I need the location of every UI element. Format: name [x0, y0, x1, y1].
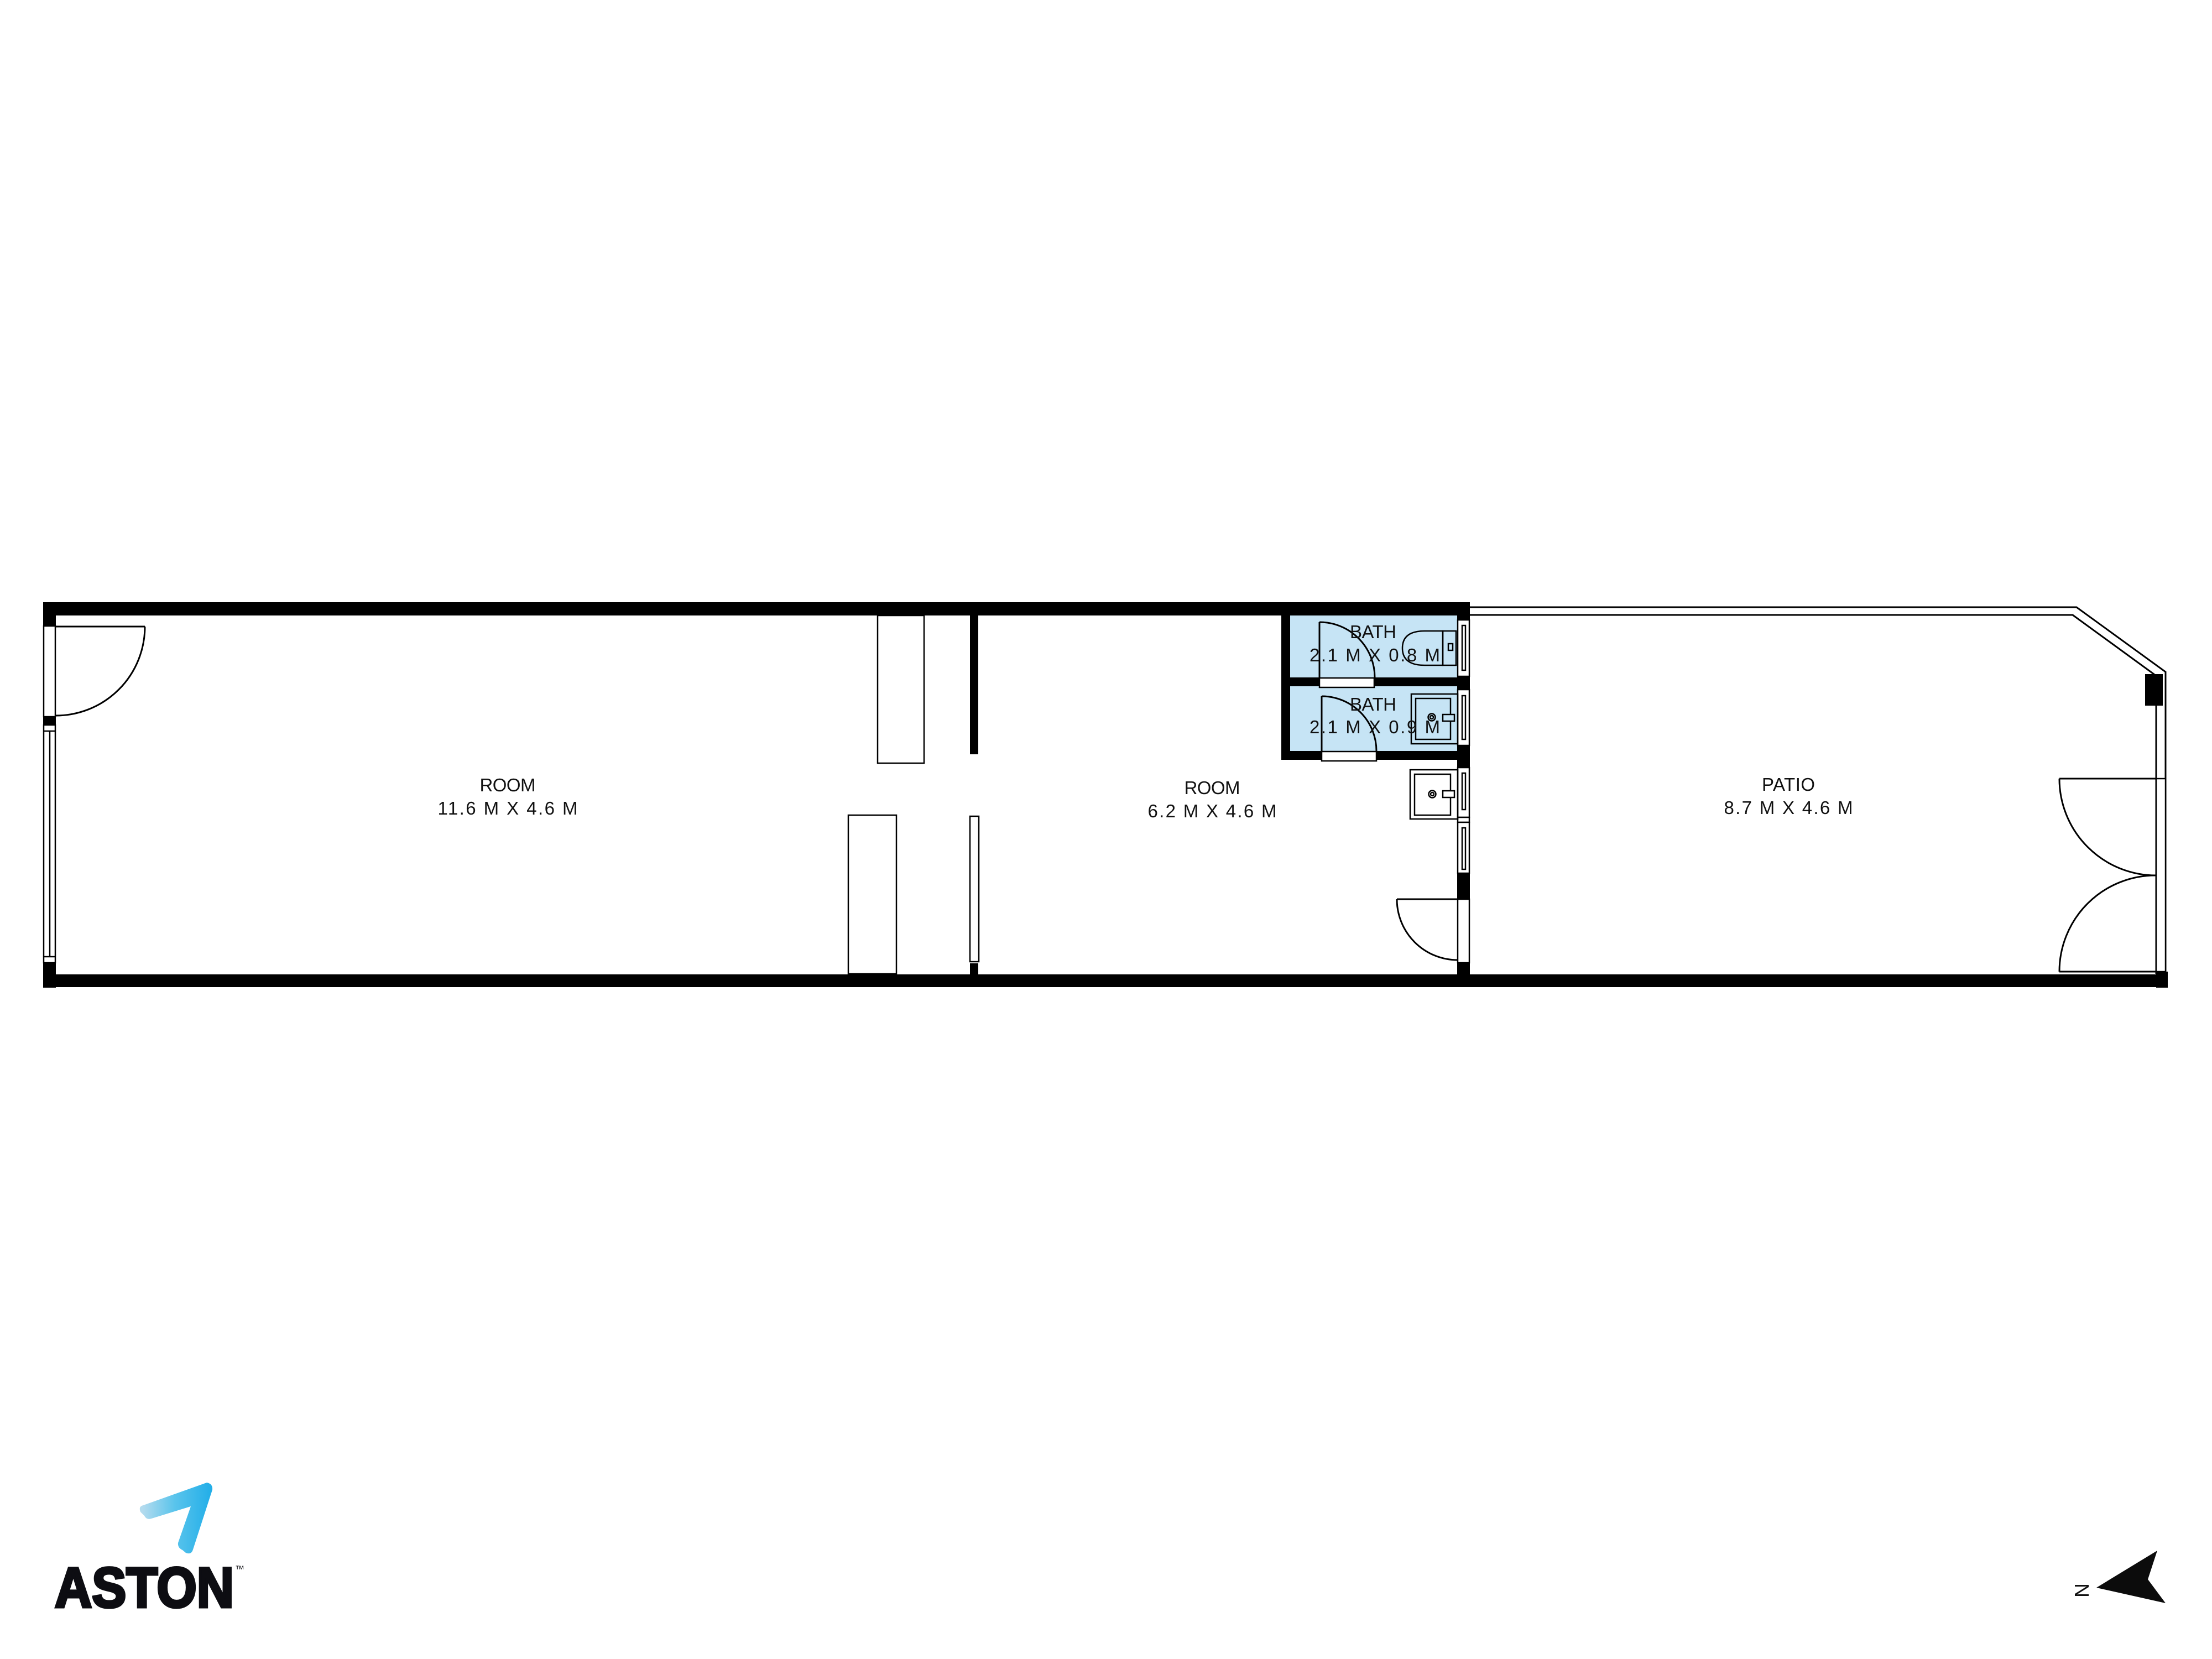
svg-text:6.2 M X 4.6 M: 6.2 M X 4.6 M: [1148, 801, 1277, 821]
svg-text:ASTON: ASTON: [55, 1556, 234, 1619]
svg-text:™: ™: [235, 1564, 244, 1574]
svg-text:ROOM: ROOM: [480, 775, 536, 795]
svg-text:2.1 M X 0.9 M: 2.1 M X 0.9 M: [1310, 717, 1440, 737]
svg-text:2.1 M X 0.8 M: 2.1 M X 0.8 M: [1310, 645, 1440, 665]
svg-text:N: N: [2070, 1583, 2093, 1598]
svg-text:BATH: BATH: [1350, 622, 1396, 642]
svg-text:8.7 M X 4.6 M: 8.7 M X 4.6 M: [1724, 797, 1853, 818]
svg-text:PATIO: PATIO: [1762, 774, 1815, 795]
svg-text:BATH: BATH: [1350, 694, 1396, 714]
svg-text:ROOM: ROOM: [1185, 778, 1240, 798]
